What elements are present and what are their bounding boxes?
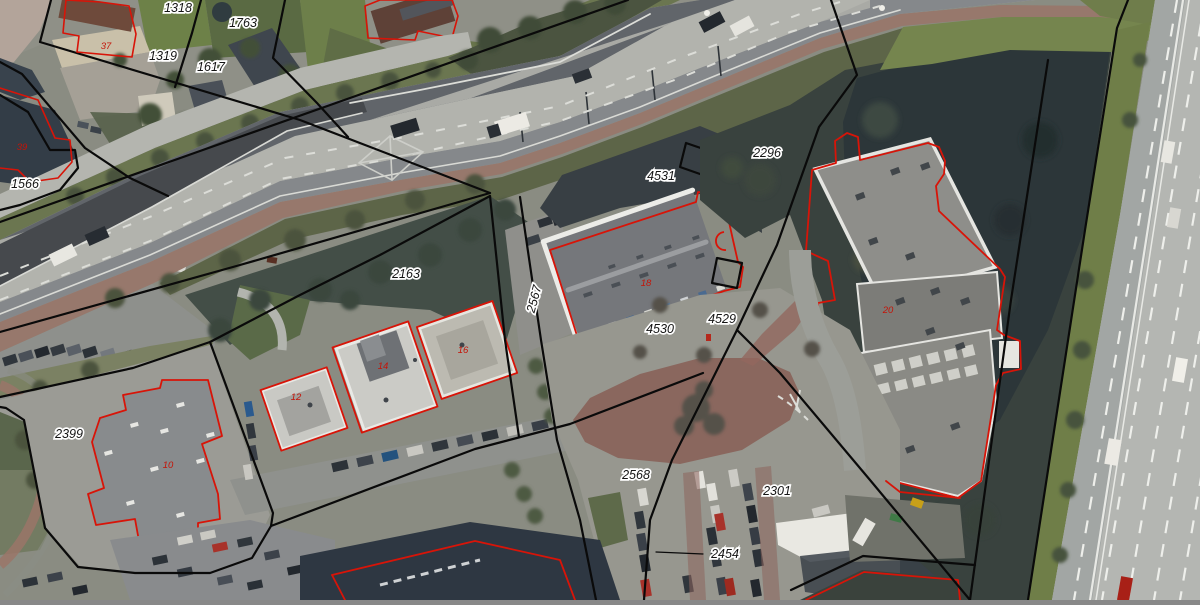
svg-text:10: 10 [163, 460, 174, 471]
svg-text:39: 39 [17, 142, 28, 153]
svg-text:14: 14 [378, 361, 389, 372]
svg-text:2301: 2301 [762, 484, 791, 498]
svg-text:1617: 1617 [197, 60, 226, 74]
svg-text:4529: 4529 [708, 312, 736, 326]
svg-text:4530: 4530 [646, 322, 674, 336]
svg-text:2163: 2163 [391, 267, 420, 281]
svg-text:1318: 1318 [164, 1, 192, 15]
svg-text:20: 20 [882, 305, 894, 316]
svg-text:1763: 1763 [229, 16, 257, 30]
svg-text:2454: 2454 [710, 547, 739, 561]
svg-text:37: 37 [101, 41, 112, 52]
svg-text:18: 18 [641, 278, 652, 289]
svg-text:2296: 2296 [752, 146, 781, 160]
svg-text:2399: 2399 [54, 427, 83, 441]
svg-text:4531: 4531 [647, 169, 675, 183]
svg-text:1319: 1319 [149, 49, 177, 63]
svg-text:1566: 1566 [11, 177, 39, 191]
svg-text:2568: 2568 [621, 468, 650, 482]
svg-text:12: 12 [291, 392, 302, 403]
svg-text:16: 16 [458, 345, 469, 356]
